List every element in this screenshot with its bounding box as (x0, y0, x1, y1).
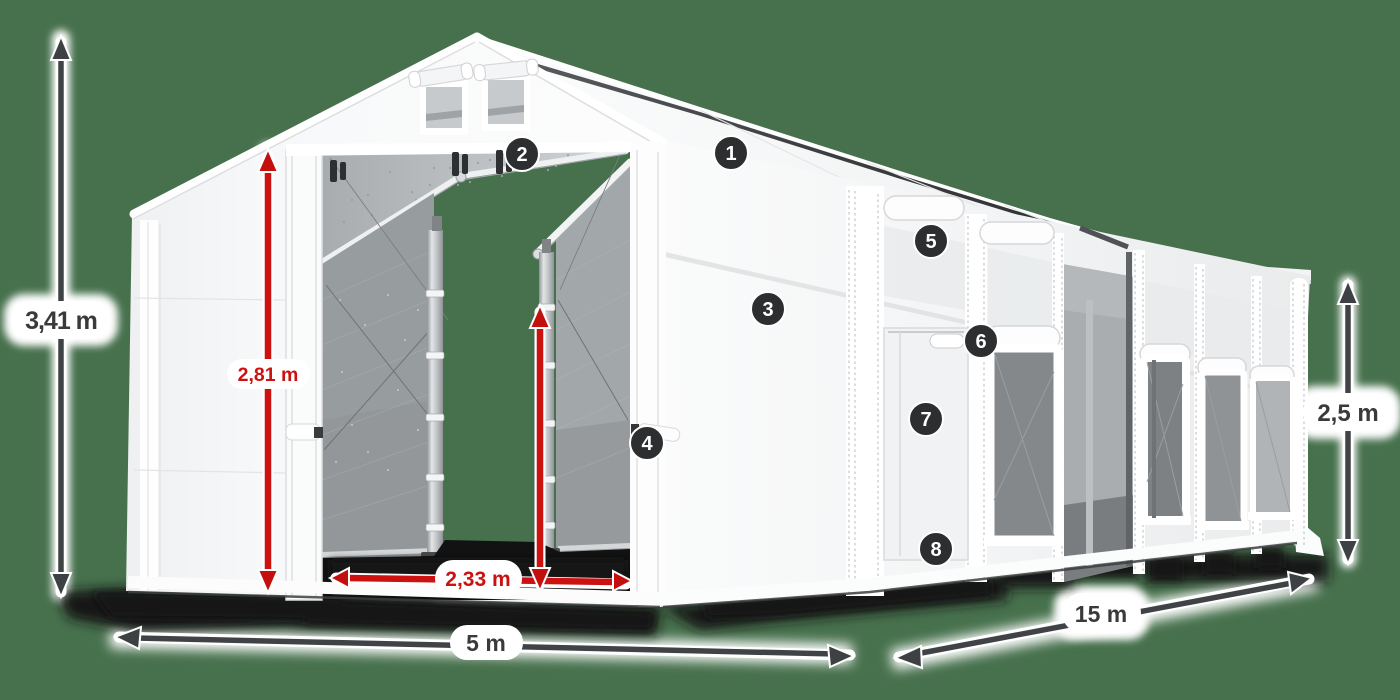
svg-text:2,33 m: 2,33 m (445, 568, 510, 591)
svg-text:2: 2 (516, 144, 527, 166)
svg-text:4: 4 (641, 433, 653, 455)
svg-text:15 m: 15 m (1075, 601, 1127, 627)
svg-text:3,41 m: 3,41 m (25, 307, 97, 335)
svg-text:7: 7 (920, 409, 931, 431)
svg-text:5: 5 (925, 231, 936, 253)
svg-text:1: 1 (725, 143, 736, 165)
svg-text:2,5 m: 2,5 m (1317, 400, 1378, 427)
svg-text:6: 6 (975, 331, 986, 353)
svg-text:3: 3 (762, 299, 773, 321)
svg-text:5 m: 5 m (466, 630, 506, 656)
svg-text:8: 8 (930, 539, 941, 561)
svg-text:2,81 m: 2,81 m (238, 364, 299, 386)
